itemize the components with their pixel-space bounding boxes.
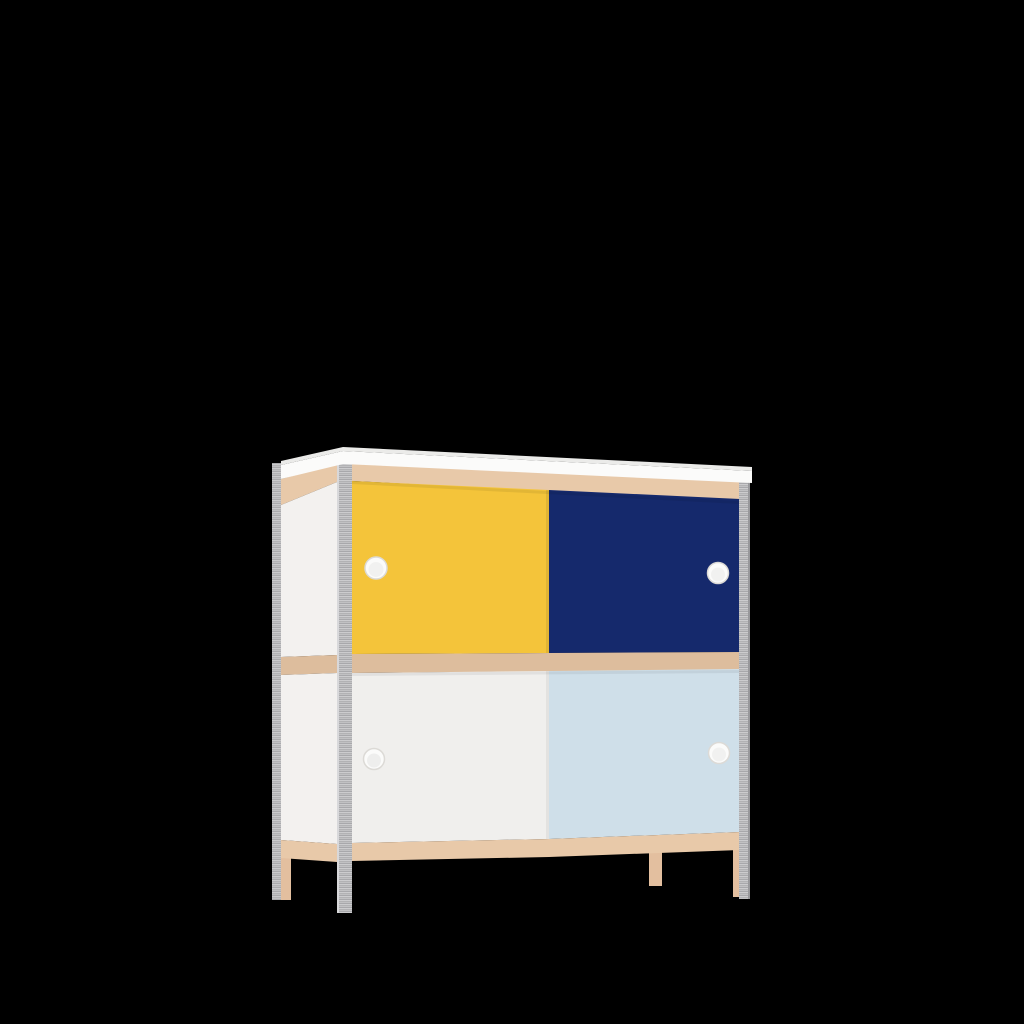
side-panel-upper: [281, 482, 337, 657]
leg-back-right: [649, 850, 662, 886]
cabinet: [272, 447, 752, 913]
render-canvas: [0, 0, 1024, 1024]
handle-yellow-recess: [369, 562, 384, 577]
post-front-right: [739, 477, 750, 899]
post-front-left: [337, 459, 352, 913]
handle-white-recess: [367, 754, 381, 768]
cabinet-render: [0, 0, 1024, 1024]
post-back-left-texture: [272, 463, 281, 900]
side-panel-lower: [281, 673, 337, 844]
post-front-left-highlight: [337, 459, 339, 913]
post-back-left: [272, 463, 281, 900]
handle-white-door: [364, 749, 385, 770]
handle-navy-door: [708, 563, 729, 584]
side-face-left: [281, 464, 337, 862]
door-navy-edge-shadow: [546, 490, 549, 653]
handle-navy-recess: [711, 568, 725, 582]
handle-yellow-door: [365, 557, 387, 579]
post-front-left-texture: [337, 459, 352, 913]
front-face: [352, 464, 740, 861]
door-lightblue-edge-shadow: [546, 671, 549, 839]
post-front-right-shade: [748, 477, 750, 899]
side-middle-rail: [281, 655, 337, 675]
handle-lightblue-recess: [712, 748, 726, 762]
handle-lightblue-door: [709, 743, 730, 764]
